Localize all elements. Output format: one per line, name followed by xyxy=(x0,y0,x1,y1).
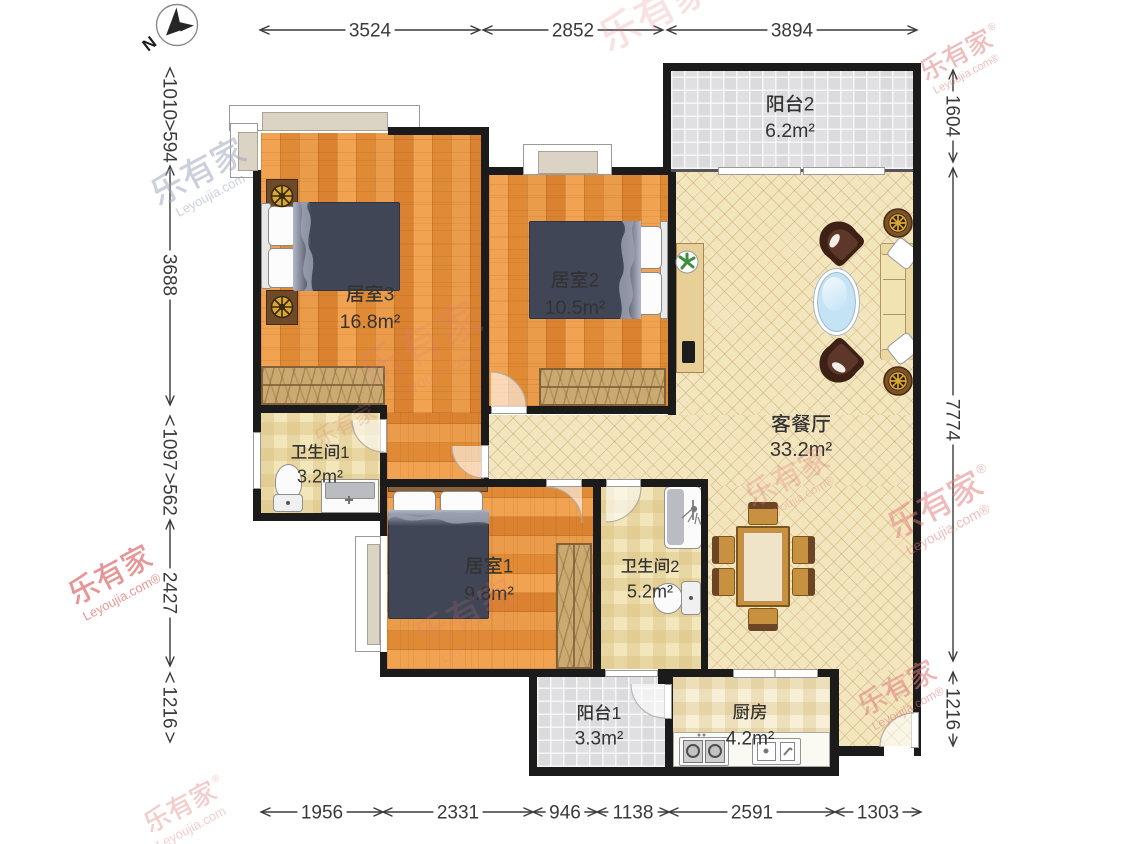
svg-text:562: 562 xyxy=(159,484,180,516)
svg-text:3.3m²: 3.3m² xyxy=(575,729,624,750)
svg-text:5.2m²: 5.2m² xyxy=(627,581,673,601)
svg-text:2427: 2427 xyxy=(159,572,180,614)
svg-text:2: 2 xyxy=(804,95,815,116)
svg-text:®: ® xyxy=(973,460,989,478)
svg-text:2331: 2331 xyxy=(437,802,479,823)
svg-text:1: 1 xyxy=(340,444,349,462)
svg-text:3894: 3894 xyxy=(771,20,814,41)
svg-text:1604: 1604 xyxy=(942,95,963,138)
svg-text:1138: 1138 xyxy=(613,802,654,823)
svg-text:594: 594 xyxy=(159,131,180,163)
svg-text:N: N xyxy=(139,33,160,56)
svg-text:3: 3 xyxy=(384,285,395,306)
svg-text:3524: 3524 xyxy=(349,20,392,41)
svg-text:1097: 1097 xyxy=(159,428,180,470)
svg-text:®: ® xyxy=(986,21,998,34)
svg-text:4.2m²: 4.2m² xyxy=(726,729,775,750)
svg-text:10.5m²: 10.5m² xyxy=(545,297,606,319)
svg-text:®: ® xyxy=(210,773,222,786)
svg-text:946: 946 xyxy=(549,802,581,823)
svg-text:1303: 1303 xyxy=(857,802,899,823)
svg-text:2591: 2591 xyxy=(731,802,773,823)
svg-text:1: 1 xyxy=(503,557,514,578)
svg-text:2852: 2852 xyxy=(552,20,594,41)
svg-text:3688: 3688 xyxy=(159,254,180,296)
svg-text:1010: 1010 xyxy=(159,78,180,120)
svg-text:6.2m²: 6.2m² xyxy=(765,120,815,142)
svg-text:16.8m²: 16.8m² xyxy=(340,311,401,333)
svg-text:1216: 1216 xyxy=(159,686,180,728)
svg-text:7774: 7774 xyxy=(942,399,963,442)
svg-text:1: 1 xyxy=(612,703,622,723)
svg-text:2: 2 xyxy=(670,558,679,576)
svg-text:1956: 1956 xyxy=(301,802,343,823)
svg-text:3.2m²: 3.2m² xyxy=(297,466,343,486)
svg-text:Leyoujia.com: Leyoujia.com xyxy=(154,803,229,844)
svg-text:2: 2 xyxy=(589,271,600,292)
